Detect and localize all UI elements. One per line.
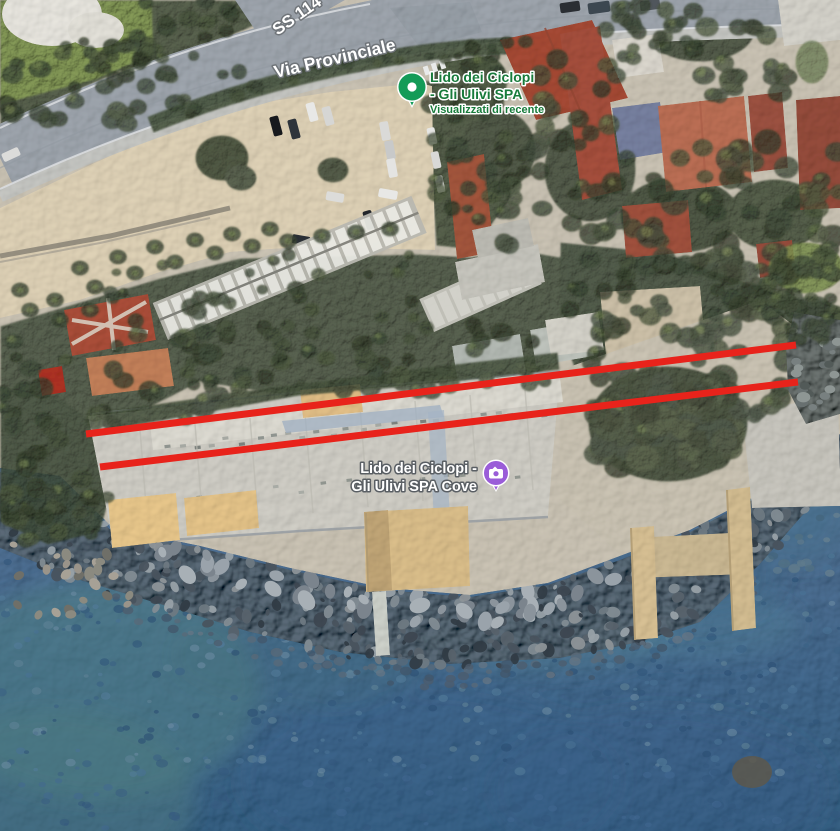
svg-text:Lido dei Ciclopi -: Lido dei Ciclopi - [360, 461, 477, 477]
svg-text:Gli Ulivi SPA Cove: Gli Ulivi SPA Cove [351, 479, 477, 495]
svg-text:Visualizzati di recente: Visualizzati di recente [430, 104, 544, 116]
svg-text:Lido dei Ciclopi: Lido dei Ciclopi [430, 69, 534, 85]
svg-text:- Gli Ulivi SPA: - Gli Ulivi SPA [430, 86, 522, 102]
